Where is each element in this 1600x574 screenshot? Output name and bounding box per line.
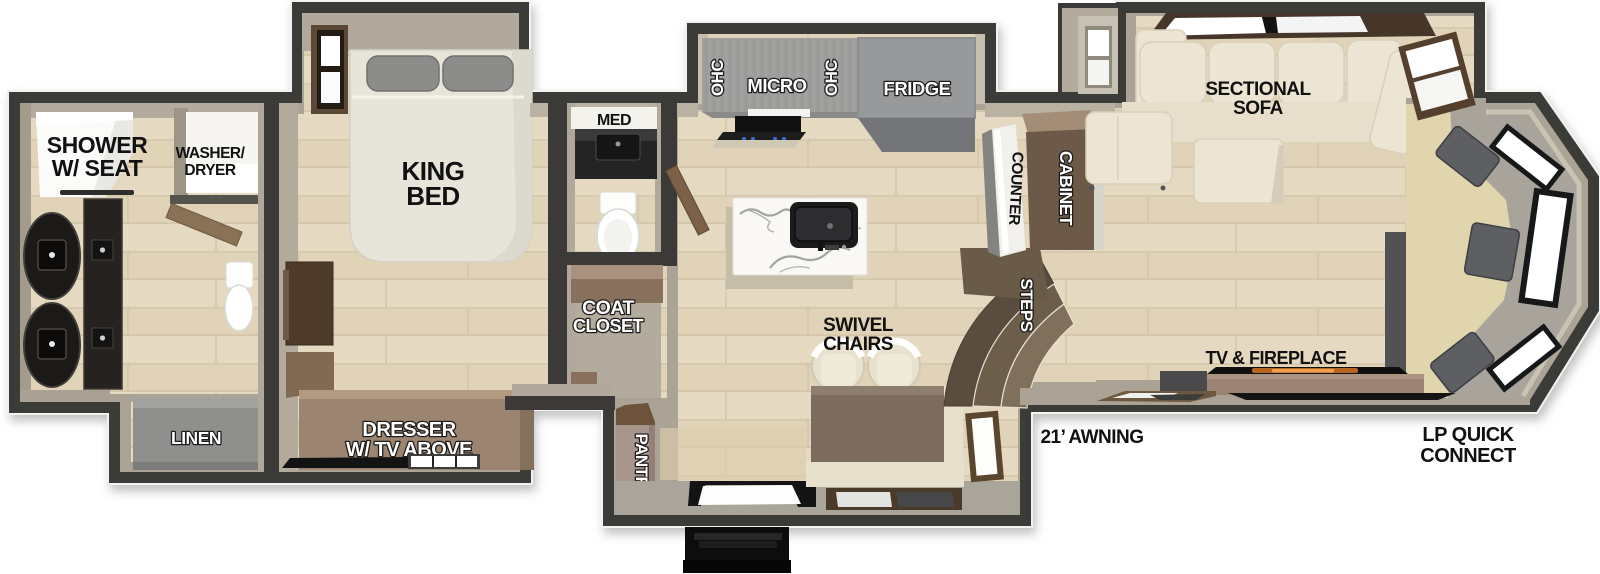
- svg-text:SOFA: SOFA: [1233, 98, 1284, 119]
- svg-text:BED: BED: [406, 181, 459, 211]
- svg-text:W/ SEAT: W/ SEAT: [52, 155, 143, 181]
- svg-text:CABINET: CABINET: [1056, 151, 1076, 226]
- svg-text:SWIVEL: SWIVEL: [823, 315, 894, 336]
- svg-text:CHAIRS: CHAIRS: [823, 334, 893, 355]
- svg-text:MED: MED: [597, 112, 631, 129]
- svg-text:LP QUICK: LP QUICK: [1422, 424, 1514, 446]
- svg-text:OHC: OHC: [822, 60, 841, 97]
- svg-text:CONNECT: CONNECT: [1420, 445, 1516, 467]
- svg-text:MICRO: MICRO: [747, 75, 806, 96]
- svg-text:WASHER/: WASHER/: [176, 145, 246, 162]
- svg-text:21’ AWNING: 21’ AWNING: [1040, 427, 1143, 448]
- svg-text:TV & FIREPLACE: TV & FIREPLACE: [1205, 348, 1347, 368]
- svg-text:STEPS: STEPS: [1017, 278, 1036, 331]
- svg-text:OHC: OHC: [708, 60, 727, 97]
- svg-text:SECTIONAL: SECTIONAL: [1205, 79, 1311, 100]
- svg-text:FRIDGE: FRIDGE: [884, 78, 951, 99]
- svg-text:LINEN: LINEN: [171, 428, 221, 448]
- svg-text:DRYER: DRYER: [184, 162, 235, 179]
- svg-text:CLOSET: CLOSET: [573, 316, 644, 336]
- svg-text:DRESSER: DRESSER: [362, 419, 456, 441]
